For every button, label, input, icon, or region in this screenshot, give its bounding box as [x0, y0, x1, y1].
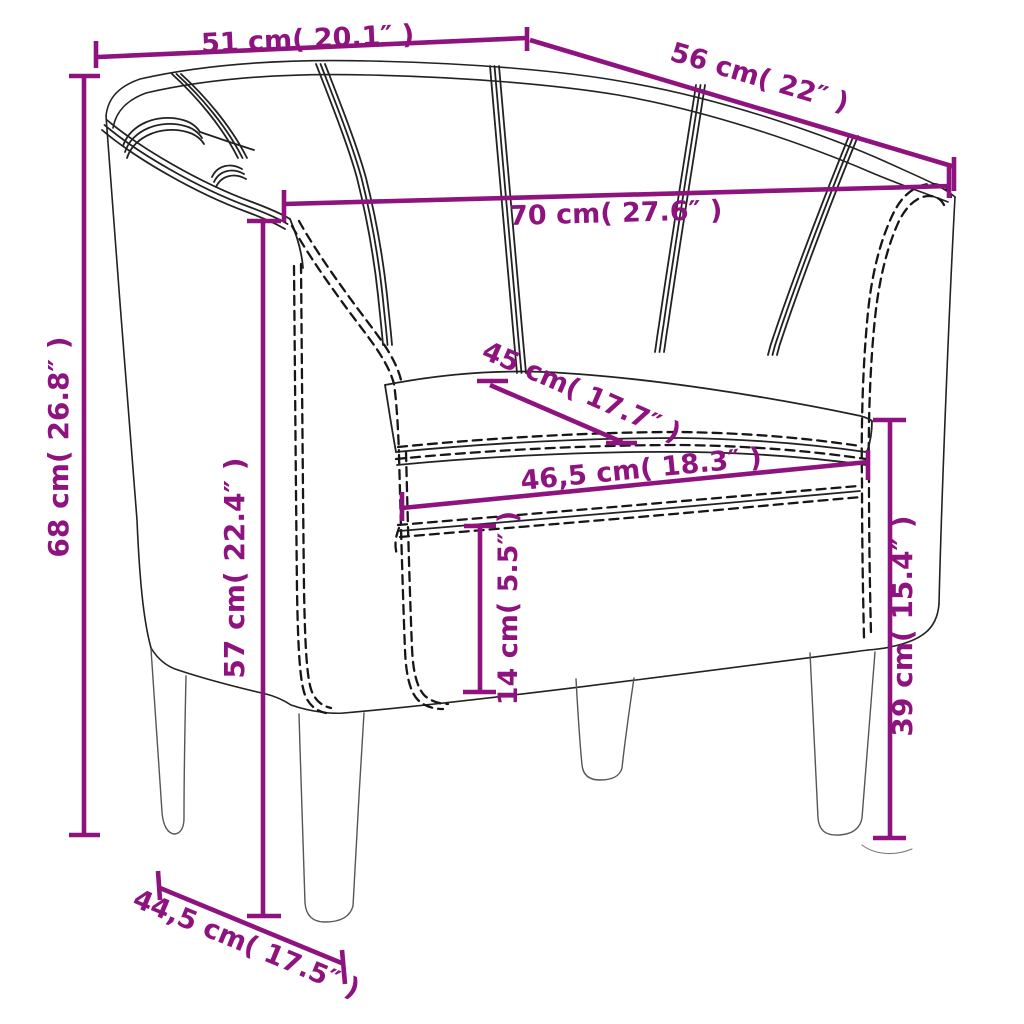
dimension-label: 51 cm( 20.1″ ) [200, 19, 414, 59]
product-dimension-image: 51 cm( 20.1″ ) 56 cm( 22″ ) 70 cm( 27.6″… [0, 0, 1024, 1024]
leg-back-right [576, 678, 634, 780]
dimension-top-depth: 56 cm( 22″ ) [530, 37, 955, 191]
dimension-label: 14 cm( 5.5″ ) [493, 511, 524, 705]
dimension-label: 44,5 cm( 17.5″ ) [128, 883, 364, 1004]
leg-front-left [299, 713, 364, 922]
dimension-base-depth: 44,5 cm( 17.5″ ) [128, 871, 364, 1005]
tub-chair-diagram: 51 cm( 20.1″ ) 56 cm( 22″ ) 70 cm( 27.6″… [0, 0, 1024, 1024]
dimension-back-height: 57 cm( 22.4″ ) [218, 221, 281, 916]
dimension-seat-width: 46,5 cm( 18.3″ ) [402, 442, 868, 521]
dimension-label: 68 cm( 26.8″ ) [42, 336, 75, 557]
leg-back-left [151, 649, 186, 834]
dimension-total-height: 68 cm( 26.8″ ) [42, 76, 100, 835]
base-piping [395, 486, 862, 557]
dimension-label: 70 cm( 27.6″ ) [509, 195, 723, 232]
inner-tub-piping [292, 184, 951, 713]
dimension-label: 39 cm( 15.4″ ) [886, 515, 919, 736]
dimension-label: 57 cm( 22.4″ ) [218, 457, 251, 678]
leg-front-right [810, 652, 875, 835]
dimension-seat-height: 39 cm( 15.4″ ) [873, 420, 919, 838]
floor-shadow [862, 845, 912, 854]
dimension-seat-depth: 45 cm( 17.7″ ) [477, 335, 685, 448]
dimension-label: 46,5 cm( 18.3″ ) [519, 442, 763, 497]
dimension-inner-width: 70 cm( 27.6″ ) [284, 166, 950, 232]
dimension-cushion-height: 14 cm( 5.5″ ) [463, 511, 524, 705]
